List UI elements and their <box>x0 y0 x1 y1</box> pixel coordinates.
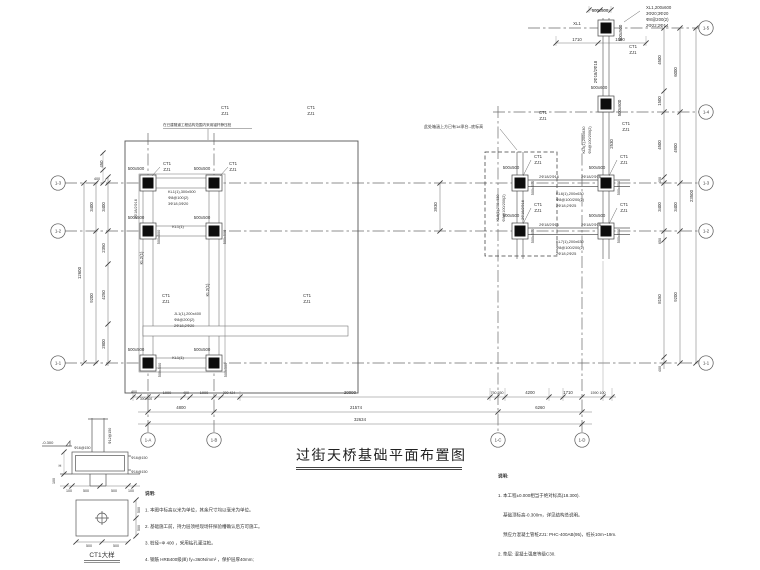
drawing-label: Φ12@150 <box>108 428 112 445</box>
drawing-label: 8150 <box>657 294 662 304</box>
note-line: 3. 桩径=Φ 400 ，采用钻孔灌注桩。 <box>145 541 361 547</box>
drawing-label: 500x500 <box>503 165 520 170</box>
drawing-label: 1710 <box>563 390 573 395</box>
drawing-label: CT1 <box>620 154 629 159</box>
drawing-label: 500 <box>86 544 92 548</box>
axis-bubble-label: 1-4 <box>703 110 710 115</box>
drawing-label: 2Φ18;2Φ25 <box>556 203 576 208</box>
drawing-label: 2Φ18;2Φ25 <box>556 251 576 256</box>
drawing-label: 2Φ18/2Φ16 <box>539 223 559 227</box>
drawing-label: 100 <box>52 478 56 484</box>
drawing-label: 500x500 <box>223 230 227 245</box>
drawing-label: 32634 <box>354 417 367 422</box>
drawing-label: 500 <box>111 489 117 493</box>
drawing-label: XL1 <box>573 21 581 26</box>
drawing-label: 500x500 <box>589 165 606 170</box>
drawing-label: CT1 <box>303 293 312 298</box>
drawing-label: 400 <box>658 366 662 372</box>
drawing-label: ZJ1 <box>629 50 637 55</box>
drawing-label: Φ16@150 <box>131 456 148 460</box>
drawing-label: 500x500 <box>194 347 211 352</box>
drawing-label: CT1 <box>221 105 230 110</box>
drawing-label: 2Φ18;2Φ20 <box>174 323 195 328</box>
drawing-label: 300 300 <box>140 397 152 401</box>
drawing-label: 4800 <box>176 405 186 410</box>
drawing-label: 400 <box>131 390 137 394</box>
drawing-label: 4500 <box>657 140 662 150</box>
note-line: 预应力混凝土管桩ZJ1: PHC-400AB(95)，桩长10m~19m. <box>498 532 733 539</box>
drawing-label: 500x500 <box>128 347 145 352</box>
drawing-label: 500x500 <box>128 215 145 220</box>
drawing-label: CT1 <box>620 202 629 207</box>
drawing-label: ZJ1 <box>229 167 237 172</box>
drawing-label: KL6(1),200x630 <box>556 191 585 196</box>
drawing-label: 3400 <box>657 202 662 212</box>
drawing-label: 500x500 <box>617 181 621 196</box>
drawing-label: 500 <box>83 489 89 493</box>
drawing-label: ZJ1 <box>534 208 542 213</box>
drawing-label: CT1 <box>629 44 638 49</box>
drawing-label: 4250 <box>101 290 106 300</box>
drawing-label: 此处箱涵上方已有1#承台--底标高 <box>424 123 483 129</box>
drawing-label: 4500 <box>657 55 662 65</box>
drawing-label: 500x500 <box>158 363 162 378</box>
drawing-label: 3Φ18;3Φ20 <box>168 201 189 206</box>
drawing-label: 23500 <box>689 189 694 202</box>
drawing-label: Φ8@200(2) <box>646 17 669 22</box>
drawing-label: 在已建隧道工程结构范围内采用锚杆静压桩 <box>163 122 232 127</box>
axis-bubble-label: 1-B <box>211 438 218 443</box>
drawing-label: 2Φ18/2Φ16 <box>581 175 601 179</box>
drawing-label: 9200 <box>673 292 678 302</box>
drawing-label: 500x500 <box>194 215 211 220</box>
drawing-title: 过街天桥基础平面布置图 <box>296 445 462 470</box>
drawing-label: KL8(1),200x630 <box>496 194 500 221</box>
drawing-label: ZJ1 <box>162 299 170 304</box>
drawing-label: ZJ1 <box>620 160 628 165</box>
drawing-label: 650 <box>658 238 662 244</box>
axis-bubble-label: 1-3 <box>703 181 710 186</box>
drawing-label: 3930 <box>433 202 438 212</box>
drawing-label: 12600 <box>77 266 82 279</box>
drawing-label: 4900 <box>673 143 678 153</box>
drawing-label: 500 <box>137 507 141 513</box>
drawing-label: KL5(1),200x630 <box>582 126 586 153</box>
drawing-label: 21574 <box>350 405 363 410</box>
drawing-label: 1900 <box>200 391 208 395</box>
drawing-label: 300 424 <box>223 391 235 395</box>
drawing-label: Φ8@100/200(2) <box>556 197 585 202</box>
drawing-label: 2Φ18/2Φ16 <box>521 200 525 220</box>
drawing-label: 400 <box>94 177 100 181</box>
drawing-label: 2530 <box>609 139 614 149</box>
drawing-label: -0.300 <box>42 440 54 445</box>
drawing-label: CT1 <box>534 154 543 159</box>
notes-right-title: 说明: <box>498 473 733 480</box>
drawing-label: 2350 <box>101 243 106 253</box>
drawing-label: 500x500 <box>224 363 228 378</box>
drawing-label: 20000 <box>344 390 357 395</box>
drawing-label: 750 550 <box>491 391 504 395</box>
drawing-label: 6000 <box>673 67 678 77</box>
drawing-label: CT1 <box>162 293 171 298</box>
note-line: 基础顶标高-0.300m，详见结构总说明。 <box>498 512 733 519</box>
drawing-label: 2Φ18/2Φ18 <box>593 60 598 83</box>
drawing-label: 1590 100 <box>591 391 606 395</box>
note-line: 2. 垫层: 混凝土强度等级C30. <box>498 551 733 558</box>
drawing-label: KL1(1),300x500 <box>168 189 197 194</box>
detail-caption: CT1大样 <box>89 550 115 559</box>
drawing-label: CT1 <box>534 202 543 207</box>
drawing-label: 100 <box>128 489 134 493</box>
drawing-label: 1590 <box>615 37 625 42</box>
drawing-label: ZJ1 <box>539 116 547 121</box>
drawing-label: KL2(1) <box>205 283 210 296</box>
drawing-label: 400 <box>658 177 662 183</box>
drawing-label: 2Φ18/2Φ16 <box>539 175 559 179</box>
drawing-label: Φ8@200(2) <box>174 317 195 322</box>
drawing-label: ZJ1 <box>221 111 229 116</box>
drawing-label: 500x500 <box>589 213 606 218</box>
drawing-label: 100 <box>66 489 72 493</box>
drawing-label: 1500 <box>657 96 662 106</box>
axis-bubble-label: 1-5 <box>703 26 710 31</box>
axis-bubble-label: 1-D <box>579 438 586 443</box>
drawing-label: Φ8@100/200(2) <box>556 245 585 250</box>
drawing-label: 500x500 <box>128 166 145 171</box>
drawing-label: 500x500 <box>617 229 621 244</box>
drawing-label: 500x500 <box>157 230 161 245</box>
drawing-label: CT1 <box>163 161 172 166</box>
drawing-label: 6260 <box>535 405 545 410</box>
drawing-label: 500 <box>137 525 141 531</box>
drawing-label: 3Φ20;3Φ20 <box>646 11 669 16</box>
drawing-label: ZJ1 <box>620 208 628 213</box>
note-line: 1. 本图中标高以米为单位，其余尺寸均以毫米为单位。 <box>145 508 361 514</box>
drawing-label: Φ16@150 <box>131 470 148 474</box>
drawing-label: 500x500 <box>531 229 535 244</box>
drawing-label: Φ8@100/200(2) <box>502 194 506 222</box>
notes-right: 说明: 1. 本工程±0.000相当于绝对标高(18.300). 基础顶标高-0… <box>498 460 733 570</box>
notes-left: 说明: 1. 本图中标高以米为单位，其余尺寸均以毫米为单位。 2. 基础施工前，… <box>145 480 361 570</box>
drawing-label: 2Φ22;2Φ14 <box>646 23 669 28</box>
drawing-label: 500x600 <box>591 85 608 90</box>
drawing-label: Φ8@100/200(2) <box>588 126 592 154</box>
drawing-label: KL1(1) <box>172 355 184 360</box>
drawing-label: 3400 <box>673 202 678 212</box>
note-line: 4. 钢筋 HRB400级(Ⅲ) fy=360N/mm² ，保护层厚40mm; <box>145 557 361 563</box>
drawing-label: 3400 <box>101 202 106 212</box>
drawing-label: CT1 <box>539 110 548 115</box>
drawing-label: 500x600 <box>617 99 622 116</box>
drawing-label: 500x500 <box>194 166 211 171</box>
axis-bubble-label: 1-2 <box>703 229 710 234</box>
drawing-label: CT1 <box>229 161 238 166</box>
drawing-label: KL2(1) <box>139 251 144 264</box>
note-line: 2. 基础施工前，持力层须经现场钎探验槽确认后方可施工。 <box>145 524 361 530</box>
drawing-label: JL1(1),200x400 <box>174 311 202 316</box>
axis-bubble-label: 1-2 <box>55 229 62 234</box>
drawing-label: 3400 <box>89 202 94 212</box>
drawing-label: H <box>59 463 62 468</box>
drawing-label: 1900 <box>163 391 171 395</box>
drawing-label: 500x500 <box>592 8 609 13</box>
drawing-label: 450 <box>99 160 104 168</box>
axis-bubble-label: 1-1 <box>703 361 710 366</box>
drawing-label: CT1 <box>307 105 316 110</box>
drawing-label: XL1,200x600 <box>646 5 672 10</box>
drawing-label: 2Φ18/2Φ16 <box>581 223 601 227</box>
drawing-label: ZJ1 <box>163 167 171 172</box>
drawing-label: CT1 <box>622 121 631 126</box>
axis-bubble-label: 1-3 <box>55 181 62 186</box>
drawing-label: KL1(1) <box>172 224 184 229</box>
axis-bubble-label: 1-1 <box>55 361 62 366</box>
notes-left-title: 说明: <box>145 491 361 497</box>
drawing-label: ZJ1 <box>303 299 311 304</box>
note-line: 1. 本工程±0.000相当于绝对标高(18.300). <box>498 493 733 500</box>
drawing-label: KL7(1),200x630 <box>556 239 585 244</box>
axis-bubble-label: 1-A <box>145 438 152 443</box>
drawing-label: Φ8@100(2) <box>168 195 189 200</box>
foundation-plan-sheet: CT1大样 500x500XL1XL1,200x6003Φ20;3Φ20Φ8@2… <box>0 0 760 570</box>
drawing-label: 500 <box>113 544 119 548</box>
drawing-label: 400 <box>183 391 189 395</box>
drawing-label: 1710 <box>572 37 582 42</box>
drawing-label: ZJ1 <box>307 111 315 116</box>
drawing-label: 500x500 <box>531 181 535 196</box>
drawing-label: ZJ1 <box>534 160 542 165</box>
drawing-label: 9200 <box>89 293 94 303</box>
drawing-label: 2800 <box>101 339 106 349</box>
drawing-label: Φ16@150 <box>74 446 91 450</box>
left-foundation-pad <box>125 141 358 393</box>
drawing-label: ZJ1 <box>622 127 630 132</box>
drawing-label: 4200 <box>525 390 535 395</box>
axis-bubble-label: 1-C <box>495 438 502 443</box>
detail-drawing: CT1大样 <box>42 418 140 562</box>
